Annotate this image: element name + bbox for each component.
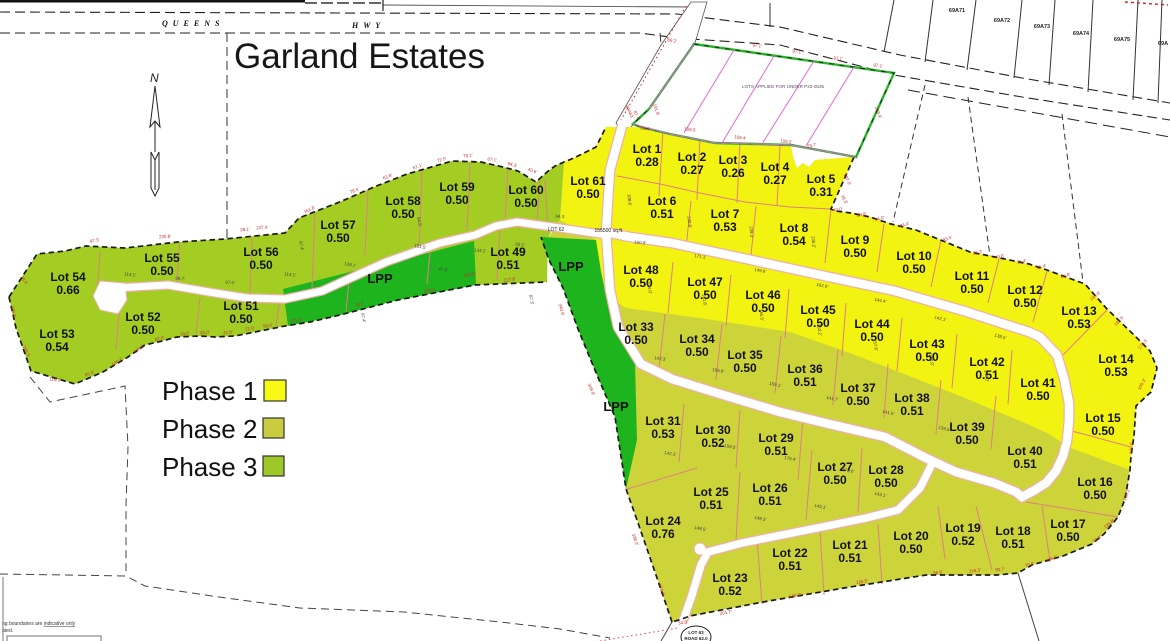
svg-text:Lot 43: Lot 43 [909,337,945,351]
svg-text:Lot 1: Lot 1 [633,142,662,156]
svg-text:114.1': 114.1' [284,272,296,278]
svg-text:Lot 48: Lot 48 [623,263,659,277]
svg-text:56.5': 56.5' [933,570,943,576]
svg-text:0.50: 0.50 [846,394,870,408]
svg-text:Lot 56: Lot 56 [243,245,279,259]
svg-text:Lot 44: Lot 44 [854,317,890,331]
svg-text:0.50: 0.50 [229,312,253,326]
svg-text:0.50: 0.50 [1083,488,1107,502]
svg-text:Phase 3: Phase 3 [162,452,257,482]
svg-text:0.54: 0.54 [782,234,806,248]
svg-text:Lot 13: Lot 13 [1061,304,1097,318]
svg-text:0.27: 0.27 [763,173,787,187]
svg-text:Lot 51: Lot 51 [223,299,259,313]
svg-text:Lot 55: Lot 55 [144,251,180,265]
svg-text:0.50: 0.50 [1091,424,1115,438]
svg-text:Lot 52: Lot 52 [125,310,161,324]
svg-text:0.50: 0.50 [391,207,415,221]
svg-text:0.50: 0.50 [576,187,600,201]
svg-text:94.3': 94.3' [555,214,565,220]
svg-text:Lot 22: Lot 22 [772,546,808,560]
svg-text:42.0': 42.0' [223,330,233,336]
svg-text:Lot 7: Lot 7 [711,207,740,221]
svg-text:47.5': 47.5' [438,267,448,273]
svg-text:0.53: 0.53 [651,427,675,441]
svg-text:Lot 46: Lot 46 [745,288,781,302]
svg-text:Phase 1: Phase 1 [162,376,257,406]
svg-text:0.50: 0.50 [823,473,847,487]
svg-text:0.50: 0.50 [960,282,984,296]
svg-text:Lot 4: Lot 4 [761,160,790,174]
svg-text:ated.: ated. [2,628,13,634]
svg-text:Phase 2: Phase 2 [162,414,257,444]
svg-text:Lot 35: Lot 35 [727,348,763,362]
svg-text:0.50: 0.50 [843,246,867,260]
svg-text:98.7': 98.7' [175,276,185,282]
svg-text:0.51: 0.51 [793,375,817,389]
svg-text:Lot 59: Lot 59 [439,180,475,194]
svg-text:0.28: 0.28 [635,155,659,169]
svg-text:Lot 18: Lot 18 [995,524,1031,538]
svg-text:Lot 53: Lot 53 [39,327,75,341]
svg-text:Lot 37: Lot 37 [840,381,876,395]
svg-text:LPP: LPP [603,399,629,414]
svg-text:HWY: HWY [351,21,385,30]
svg-text:Lot 36: Lot 36 [787,362,823,376]
svg-text:0.26: 0.26 [721,166,745,180]
svg-text:116.3': 116.3' [969,567,981,573]
svg-text:LOT 63: LOT 63 [688,630,704,635]
svg-text:Lot 45: Lot 45 [800,303,836,317]
svg-text:0.50: 0.50 [874,476,898,490]
svg-text:0.51: 0.51 [838,551,862,565]
svg-text:0.51: 0.51 [650,207,674,221]
svg-text:0.51: 0.51 [1001,537,1025,551]
svg-text:28.1': 28.1' [240,227,250,233]
svg-text:Lot 12: Lot 12 [1007,283,1043,297]
svg-text:Lot 29: Lot 29 [758,431,794,445]
svg-text:108.6': 108.6' [626,194,632,207]
svg-text:230.8': 230.8' [159,234,172,240]
svg-text:0.50: 0.50 [899,542,923,556]
svg-text:136.2': 136.2' [810,236,816,249]
svg-text:Lot 40: Lot 40 [1007,444,1043,458]
svg-text:0.50: 0.50 [624,333,648,347]
svg-text:0.53: 0.53 [1104,365,1128,379]
svg-text:Garland Estates: Garland Estates [234,37,485,76]
svg-text:Lot 15: Lot 15 [1085,411,1121,425]
svg-text:Lot 28: Lot 28 [868,463,904,477]
svg-text:Lot 49: Lot 49 [490,245,526,259]
svg-text:LPP: LPP [367,271,393,286]
svg-text:69A74: 69A74 [1073,31,1090,37]
svg-text:Lot 33: Lot 33 [618,320,654,334]
svg-text:Lot 5: Lot 5 [807,172,836,186]
svg-text:67.0': 67.0' [225,280,235,286]
svg-text:Lot 26: Lot 26 [752,481,788,495]
svg-text:Lot 9: Lot 9 [841,233,870,247]
svg-text:0.31: 0.31 [809,185,833,199]
svg-text:0.50: 0.50 [733,361,757,375]
svg-text:Lot 58: Lot 58 [385,194,421,208]
svg-text:0.51: 0.51 [1013,457,1037,471]
svg-text:Lot 3: Lot 3 [719,153,748,167]
svg-text:Lot 14: Lot 14 [1098,352,1134,366]
svg-text:Lot 11: Lot 11 [955,269,990,283]
svg-text:Lot 21: Lot 21 [832,538,868,552]
svg-text:0.50: 0.50 [326,231,350,245]
svg-text:Lot 16: Lot 16 [1077,475,1113,489]
svg-text:ng boundaries are indicativ: ng boundaries are indicative only [2,621,76,627]
svg-text:0.52: 0.52 [701,436,725,450]
svg-text:Lot 30: Lot 30 [695,423,731,437]
svg-text:Lot 42: Lot 42 [969,355,1005,369]
svg-text:134.1': 134.1' [474,247,487,253]
svg-text:155500 sq.ft.: 155500 sq.ft. [595,228,624,234]
svg-text:130.8': 130.8' [686,216,692,229]
svg-text:Lot 41: Lot 41 [1020,376,1056,390]
svg-text:Lot 25: Lot 25 [693,485,729,499]
svg-text:0.52: 0.52 [718,584,742,598]
svg-text:0.51: 0.51 [699,498,723,512]
svg-text:0.50: 0.50 [249,258,273,272]
svg-text:Lot 39: Lot 39 [949,420,985,434]
svg-text:N: N [150,71,159,85]
svg-text:Lot 31: Lot 31 [645,414,681,428]
svg-text:LPP: LPP [558,259,584,274]
svg-text:Lot 38: Lot 38 [894,391,930,405]
svg-text:0.27: 0.27 [680,163,704,177]
svg-text:0.51: 0.51 [758,494,782,508]
svg-text:69A72: 69A72 [994,18,1010,24]
svg-text:65.1': 65.1' [515,242,525,248]
svg-text:69A71: 69A71 [949,8,965,14]
svg-text:Lot 6: Lot 6 [648,194,677,208]
svg-text:Lot 61: Lot 61 [570,174,606,188]
svg-text:0.51: 0.51 [900,404,924,418]
svg-text:0.50: 0.50 [902,262,926,276]
svg-text:Lot 8: Lot 8 [780,221,809,235]
svg-text:Lot 57: Lot 57 [320,218,356,232]
svg-text:ROAD 62.0: ROAD 62.0 [684,636,708,641]
svg-text:Lot 19: Lot 19 [945,521,981,535]
svg-text:0.53: 0.53 [1067,317,1091,331]
svg-text:0.52: 0.52 [951,534,975,548]
svg-text:90.7': 90.7' [995,567,1005,573]
svg-text:Lot 20: Lot 20 [893,529,929,543]
svg-text:0.50: 0.50 [1026,389,1050,403]
svg-text:LOT 62: LOT 62 [548,227,565,233]
svg-text:69A: 69A [1158,41,1168,47]
svg-text:0.53: 0.53 [713,220,737,234]
svg-text:160.9': 160.9' [634,239,647,245]
svg-text:QUEENS: QUEENS [162,19,224,28]
svg-text:0.66: 0.66 [56,283,80,297]
svg-text:Lot 24: Lot 24 [645,514,681,528]
svg-text:114.1': 114.1' [124,272,136,278]
svg-text:0.51: 0.51 [778,559,802,573]
svg-text:0.50: 0.50 [131,323,155,337]
svg-text:0.50: 0.50 [860,330,884,344]
svg-text:0.50: 0.50 [955,433,979,447]
svg-text:105.0': 105.0' [1128,441,1134,454]
svg-text:Lot 23: Lot 23 [712,571,748,585]
svg-text:70.1': 70.1' [463,153,473,159]
svg-text:0.50: 0.50 [1013,296,1037,310]
svg-text:Lot 17: Lot 17 [1050,517,1086,531]
svg-text:LOTS APPLIED FOR UNDER P23: LOTS APPLIED FOR UNDER P23-0535 [742,84,825,89]
svg-text:Lot 2: Lot 2 [678,150,707,164]
svg-text:0.50: 0.50 [1056,530,1080,544]
svg-text:0.50: 0.50 [915,350,939,364]
svg-text:0.50: 0.50 [150,264,174,278]
svg-text:Lot 10: Lot 10 [896,249,932,263]
svg-text:Lot 34: Lot 34 [679,332,715,346]
svg-text:0.54: 0.54 [45,340,69,354]
svg-text:Lot 54: Lot 54 [50,270,86,284]
svg-text:0.76: 0.76 [651,527,675,541]
svg-text:0.51: 0.51 [496,258,520,272]
svg-text:137.4': 137.4' [256,225,269,231]
svg-text:Lot 47: Lot 47 [687,275,723,289]
svg-text:0.50: 0.50 [445,193,469,207]
svg-text:Lot 60: Lot 60 [508,183,544,197]
svg-text:139.3': 139.3' [748,226,754,239]
svg-text:69A73: 69A73 [1034,24,1050,30]
svg-text:69A75: 69A75 [1114,37,1130,43]
svg-text:0.50: 0.50 [514,196,538,210]
svg-text:0.50: 0.50 [685,345,709,359]
